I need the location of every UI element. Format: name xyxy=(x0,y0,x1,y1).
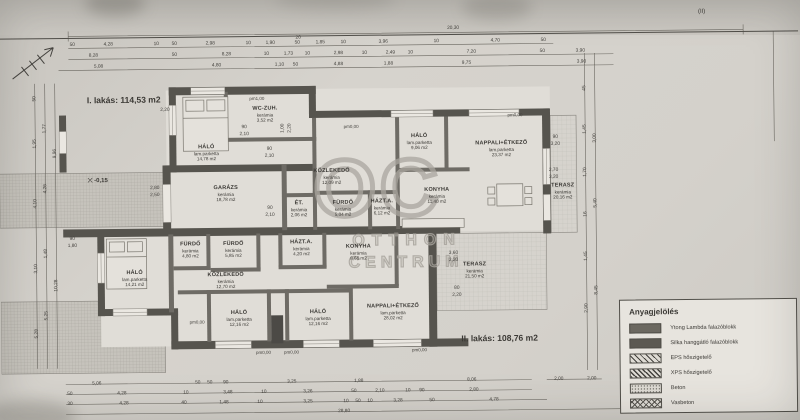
dimension-label: 50 xyxy=(540,49,545,54)
room-name: FÜRDŐ xyxy=(333,200,354,207)
dimension-label: 1,45 xyxy=(583,124,588,133)
dimension-label: 50 xyxy=(172,53,177,58)
dimension-label: 2,70 xyxy=(549,168,558,173)
dimension-label: 10 xyxy=(343,399,348,404)
dimension-label: 10 xyxy=(341,40,346,45)
dimension-label: 1,90 xyxy=(266,41,275,46)
level-cross-icon: ⤫ xyxy=(88,178,93,184)
dimension-label: 1,45 xyxy=(584,251,589,260)
room-name: KONYHA xyxy=(346,244,371,251)
room-area: 4,20 m2 xyxy=(290,251,313,257)
room-label: HÁZT.A.kerámia4,20 m2 xyxy=(290,239,313,257)
room-label: FÜRDŐkerámia5,85 m2 xyxy=(223,241,244,259)
dimension-label: 4,28 xyxy=(119,401,128,406)
dimension-label: 50 xyxy=(70,43,75,48)
dimension-label: 2,50 xyxy=(150,193,159,198)
room-area: 14,78 m2 xyxy=(194,156,219,162)
legend-swatch-crosshatch xyxy=(630,398,662,408)
floor-level-marker: pm0,00 xyxy=(190,320,205,325)
boundary-label: (II) xyxy=(698,9,705,15)
legend-swatch-solid xyxy=(629,323,661,333)
level-value: -0,15 xyxy=(94,178,108,184)
dimension-label: 20,30 xyxy=(447,26,459,31)
dimension-label: 4,10 xyxy=(33,199,38,208)
dimension-label: 30 xyxy=(67,402,72,407)
room-area: 21,50 m2 xyxy=(463,273,486,279)
room-label: NAPPALI+ÉTKEZŐlam.parketta23,37 m2 xyxy=(475,140,527,158)
legend-label: Silka hanggátló falazóblokk xyxy=(670,339,738,346)
room-area: 11,40 m2 xyxy=(424,199,449,205)
floor-level: ⤫ -0,15 xyxy=(88,178,108,185)
dimension-label: 50 xyxy=(32,96,37,101)
dimension-label: 1,88 xyxy=(354,379,363,384)
drawing-sheet: OC OTTHON CENTRUM HÁLÓlam.parketta14,78 … xyxy=(0,0,800,420)
dimension-label: 1,95 xyxy=(33,139,38,148)
dimension-label: 3,28 xyxy=(393,398,402,403)
room-label: HÁLÓlam.parketta12,16 m2 xyxy=(226,310,251,328)
dimension-label: 3,25 xyxy=(303,399,312,404)
dimension-label: 8,45 xyxy=(594,285,599,294)
room-area: 14,21 m2 xyxy=(122,282,147,288)
dimension-label: 10 xyxy=(183,391,188,396)
room-label: HÁZT.A.kerámia6,12 m2 xyxy=(371,198,394,216)
dimension-label: 8,06 xyxy=(467,378,476,383)
room-label: NAPPALI+ÉTKEZŐlam.parketta28,02 m2 xyxy=(367,303,419,321)
room-name: GARÁZS xyxy=(214,185,239,192)
dimension-label: 2,10 xyxy=(375,389,384,394)
dimension-label: 10 xyxy=(154,42,159,47)
room-label: WC-ZUH.kerámia3,52 m2 xyxy=(252,105,277,123)
room-area: 12,16 m2 xyxy=(227,322,252,328)
dimension-label: 3,90 xyxy=(577,60,586,65)
dimension-label: 50 xyxy=(355,399,360,404)
room-name: HÁZT.A. xyxy=(371,198,394,205)
room-label: HÁLÓlam.parketta14,78 m2 xyxy=(194,144,219,162)
dimension-label: 1,73 xyxy=(284,52,293,57)
dimension-label: 5,06 xyxy=(92,382,101,387)
dimension-label: 2,98 xyxy=(206,41,215,46)
legend-item: Beton xyxy=(630,382,788,394)
dimension-label: 2,10 xyxy=(265,154,274,159)
dimension-label: 10 xyxy=(264,52,269,57)
room-name: KÖZLEKEDŐ xyxy=(313,168,349,175)
room-label: KÖZLEKEDŐkerámia12,09 m2 xyxy=(313,168,350,186)
dimension-label: 2,80 xyxy=(150,186,159,191)
dimension-label: 3,48 xyxy=(223,390,232,395)
dimension-label: 80 xyxy=(454,286,459,291)
legend-label: Beton xyxy=(671,385,686,391)
dimension-label: 7,20 xyxy=(467,50,476,55)
room-label: KONYHAkerámia8,66 m2 xyxy=(346,244,371,262)
legend-item: Vasbeton xyxy=(630,397,788,409)
room-label: TERASZkerámia20,16 m2 xyxy=(551,182,574,200)
dimension-label: 2,49 xyxy=(386,51,395,56)
dimension-label: 50 xyxy=(351,389,356,394)
dimension-label: 1,10 xyxy=(275,63,284,68)
room-area: 3,52 m2 xyxy=(252,118,277,124)
dimension-label: 1,00 xyxy=(281,124,286,133)
room-name: NAPPALI+ÉTKEZŐ xyxy=(367,303,419,310)
dimension-label: 3,25 xyxy=(287,380,296,385)
room-label: HÁLÓlam.parketta12,16 m2 xyxy=(305,309,330,327)
legend-label: Vasbeton xyxy=(671,400,694,406)
dimension-label: 9,75 xyxy=(462,61,471,66)
dimension-label: 4,80 xyxy=(212,63,221,68)
dimension-label: 4,78 xyxy=(489,397,498,402)
dimension-label: 10 xyxy=(367,399,372,404)
room-name: TERASZ xyxy=(551,182,574,189)
room-area: 23,37 m2 xyxy=(475,152,527,158)
room-area: 9,06 m2 xyxy=(407,145,432,151)
dimension-label: 10 xyxy=(261,390,266,395)
dimension-label: 90 xyxy=(223,380,228,385)
legend-item: XPS hőszigetelő xyxy=(630,367,788,379)
dimension-label: 10 xyxy=(408,50,413,55)
dimension-label: 3,26 xyxy=(303,389,312,394)
duct-block xyxy=(271,315,283,343)
room-name: TERASZ xyxy=(463,261,486,268)
dimension-label: 50 xyxy=(293,63,298,68)
legend-label: XPS hőszigetelő xyxy=(671,370,712,376)
dimension-label: 1,48 xyxy=(44,249,49,258)
dimension-label: 3,96 xyxy=(379,40,388,45)
legend-swatch-solid2 xyxy=(629,338,661,348)
dimension-label: 2,98 xyxy=(334,51,343,56)
room-label: FÜRDŐkerámia4,80 m2 xyxy=(180,241,201,259)
dimension-label: 1,48 xyxy=(219,400,228,405)
legend-swatch-dots xyxy=(630,383,662,393)
room-area: 18,78 m2 xyxy=(214,197,238,203)
dimension-label: 50 xyxy=(207,380,212,385)
legend-item: Silka hanggátló falazóblokk xyxy=(629,337,787,349)
dimension-label: 8,28 xyxy=(89,54,98,59)
dimension-label: 1,80 xyxy=(68,244,77,249)
dimension-label: 1,85 xyxy=(316,40,325,45)
dimension-label: 2,10 xyxy=(265,213,274,218)
room-area: 28,02 m2 xyxy=(367,315,419,321)
dimension-label: 50 xyxy=(67,392,72,397)
dimension-label: 3,90 xyxy=(576,49,585,54)
dimension-label: 3,00 xyxy=(593,133,598,142)
room-label: FÜRDŐkerámia5,04 m2 xyxy=(333,200,354,218)
dimension-label: 1,88 xyxy=(384,62,393,67)
dimension-label: 10 xyxy=(246,41,251,46)
dimension-label: 10 xyxy=(305,51,310,56)
dimension-label: 4,28 xyxy=(104,42,113,47)
flat2-title: II. lakás: 108,76 m2 xyxy=(461,333,538,344)
legend-items: Ytong Lambda falazóblokkSilka hanggátló … xyxy=(629,322,788,409)
dimension-label: 1,70 xyxy=(583,167,588,176)
dimension-label: 2,00 xyxy=(587,376,596,381)
dimension-label: 3,60 xyxy=(449,251,458,256)
material-legend: Anyagjelölés Ytong Lambda falazóblokkSil… xyxy=(619,298,798,414)
dimension-label: 16 xyxy=(584,211,589,216)
dimension-label: 90 xyxy=(419,388,424,393)
room-area: 12,16 m2 xyxy=(306,321,331,327)
dimension-label: 10 xyxy=(257,400,262,405)
dimension-label: 90 xyxy=(267,147,272,152)
room-area: 5,04 m2 xyxy=(333,212,354,218)
room-label: HÁLÓlam.parketta14,21 m2 xyxy=(122,270,147,288)
room-name: WC-ZUH. xyxy=(252,105,277,112)
dimension-label: 4,26 xyxy=(43,184,48,193)
dimension-label: 90 xyxy=(267,206,272,211)
dimension-label: 2,00 xyxy=(554,377,563,382)
flat1-title: I. lakás: 114,53 m2 xyxy=(87,95,161,106)
dimension-label: 4,28 xyxy=(117,391,126,396)
room-label: GARÁZSkerámia18,78 m2 xyxy=(214,185,239,203)
room-area: 5,85 m2 xyxy=(223,253,244,259)
room-area: 4,80 m2 xyxy=(180,253,201,259)
room-label: ÉT.kerámia2,06 m2 xyxy=(291,200,308,218)
dimension-label: 90 xyxy=(553,135,558,140)
dimension-label: 50 xyxy=(541,38,546,43)
floor-level-marker: pm0,00 xyxy=(507,112,522,117)
dimension-label: 3,20 xyxy=(549,175,558,180)
dimension-label: 5,25 xyxy=(45,311,50,320)
room-area: 8,66 m2 xyxy=(346,256,371,262)
dimension-label: 5,08 xyxy=(94,65,103,70)
dimension-label: 2,20 xyxy=(288,123,293,132)
room-name: NAPPALI+ÉTKEZŐ xyxy=(475,140,527,147)
legend-item: EPS hőszigetelő xyxy=(630,352,788,364)
dimension-label: 9,96 xyxy=(53,149,58,158)
dimension-label: 4,70 xyxy=(491,38,500,43)
floor-plan-scan: OC OTTHON CENTRUM HÁLÓlam.parketta14,78 … xyxy=(0,0,800,420)
dimension-label: 10 xyxy=(405,388,410,393)
floor-level-marker: pm0,00 xyxy=(284,350,299,355)
room-label: HÁLÓlam.parketta9,06 m2 xyxy=(407,133,432,151)
room-area: 6,12 m2 xyxy=(371,210,394,216)
legend-label: EPS hőszigetelő xyxy=(671,355,712,361)
dimension-label: 3,20 xyxy=(551,142,560,147)
dimension-label: 2,80 xyxy=(469,388,478,393)
room-area: 2,06 m2 xyxy=(291,212,308,218)
dimension-label: 10,28 xyxy=(54,280,59,292)
floor-level-marker: pm0,00 xyxy=(344,124,359,129)
floor-level-marker: pm1,00 xyxy=(249,96,264,101)
room-label: KÖZLEKEDŐkerámia12,70 m2 xyxy=(207,272,244,290)
dimension-label: 5,28 xyxy=(35,329,40,338)
room-label: TERASZkerámia21,50 m2 xyxy=(463,261,486,279)
dimension-label: 2,20 xyxy=(452,293,461,298)
legend-swatch-hatch xyxy=(630,353,662,363)
dimension-label: 2,90 xyxy=(584,303,589,312)
dimension-label: 5,40 xyxy=(593,198,598,207)
dimension-label: 2,20 xyxy=(160,108,169,113)
dimension-label: 10 xyxy=(362,51,367,56)
legend-label: Ytong Lambda falazóblokk xyxy=(670,324,736,331)
dimension-label: 50 xyxy=(295,41,300,46)
dimension-label: 45 xyxy=(582,85,587,90)
dimension-label: 4,88 xyxy=(334,62,343,67)
dimension-label: 28,80 xyxy=(338,409,350,414)
legend-item: Ytong Lambda falazóblokk xyxy=(629,322,787,334)
dimension-label: 10 xyxy=(434,39,439,44)
room-area: 12,09 m2 xyxy=(314,180,350,186)
legend-swatch-hatch2 xyxy=(630,368,662,378)
dimension-label: 90 xyxy=(70,237,75,242)
room-name: KONYHA xyxy=(424,187,449,194)
fence-symbol-icon xyxy=(12,48,53,79)
dimension-label: 1,77 xyxy=(43,124,48,133)
room-name: HÁZT.A. xyxy=(290,239,313,246)
dimension-label: 50 xyxy=(429,398,434,403)
dimension-label: 50 xyxy=(195,381,200,386)
room-name: FÜRDŐ xyxy=(180,241,201,248)
legend-title: Anyagjelölés xyxy=(629,306,787,317)
dimension-label: 2,10 xyxy=(240,132,249,137)
floor-level-marker: pm0,00 xyxy=(256,350,271,355)
boundary-line xyxy=(0,31,798,39)
dimension-label: 2,20 xyxy=(449,258,458,263)
dimension-label: 90 xyxy=(241,125,246,130)
room-area: 12,70 m2 xyxy=(208,284,244,290)
dimension-label: 50 xyxy=(172,42,177,47)
room-name: KÖZLEKEDŐ xyxy=(207,272,243,279)
floor-level-marker: pm0,00 xyxy=(412,347,427,352)
dimension-label: 8,28 xyxy=(222,52,231,57)
dimension-label: 40 xyxy=(181,401,186,406)
room-name: FÜRDŐ xyxy=(223,241,244,248)
dimension-label: 3,10 xyxy=(34,264,39,273)
room-label: KONYHAkerámia11,40 m2 xyxy=(424,187,449,205)
room-area: 20,16 m2 xyxy=(551,194,574,200)
bed-icon xyxy=(183,97,229,151)
